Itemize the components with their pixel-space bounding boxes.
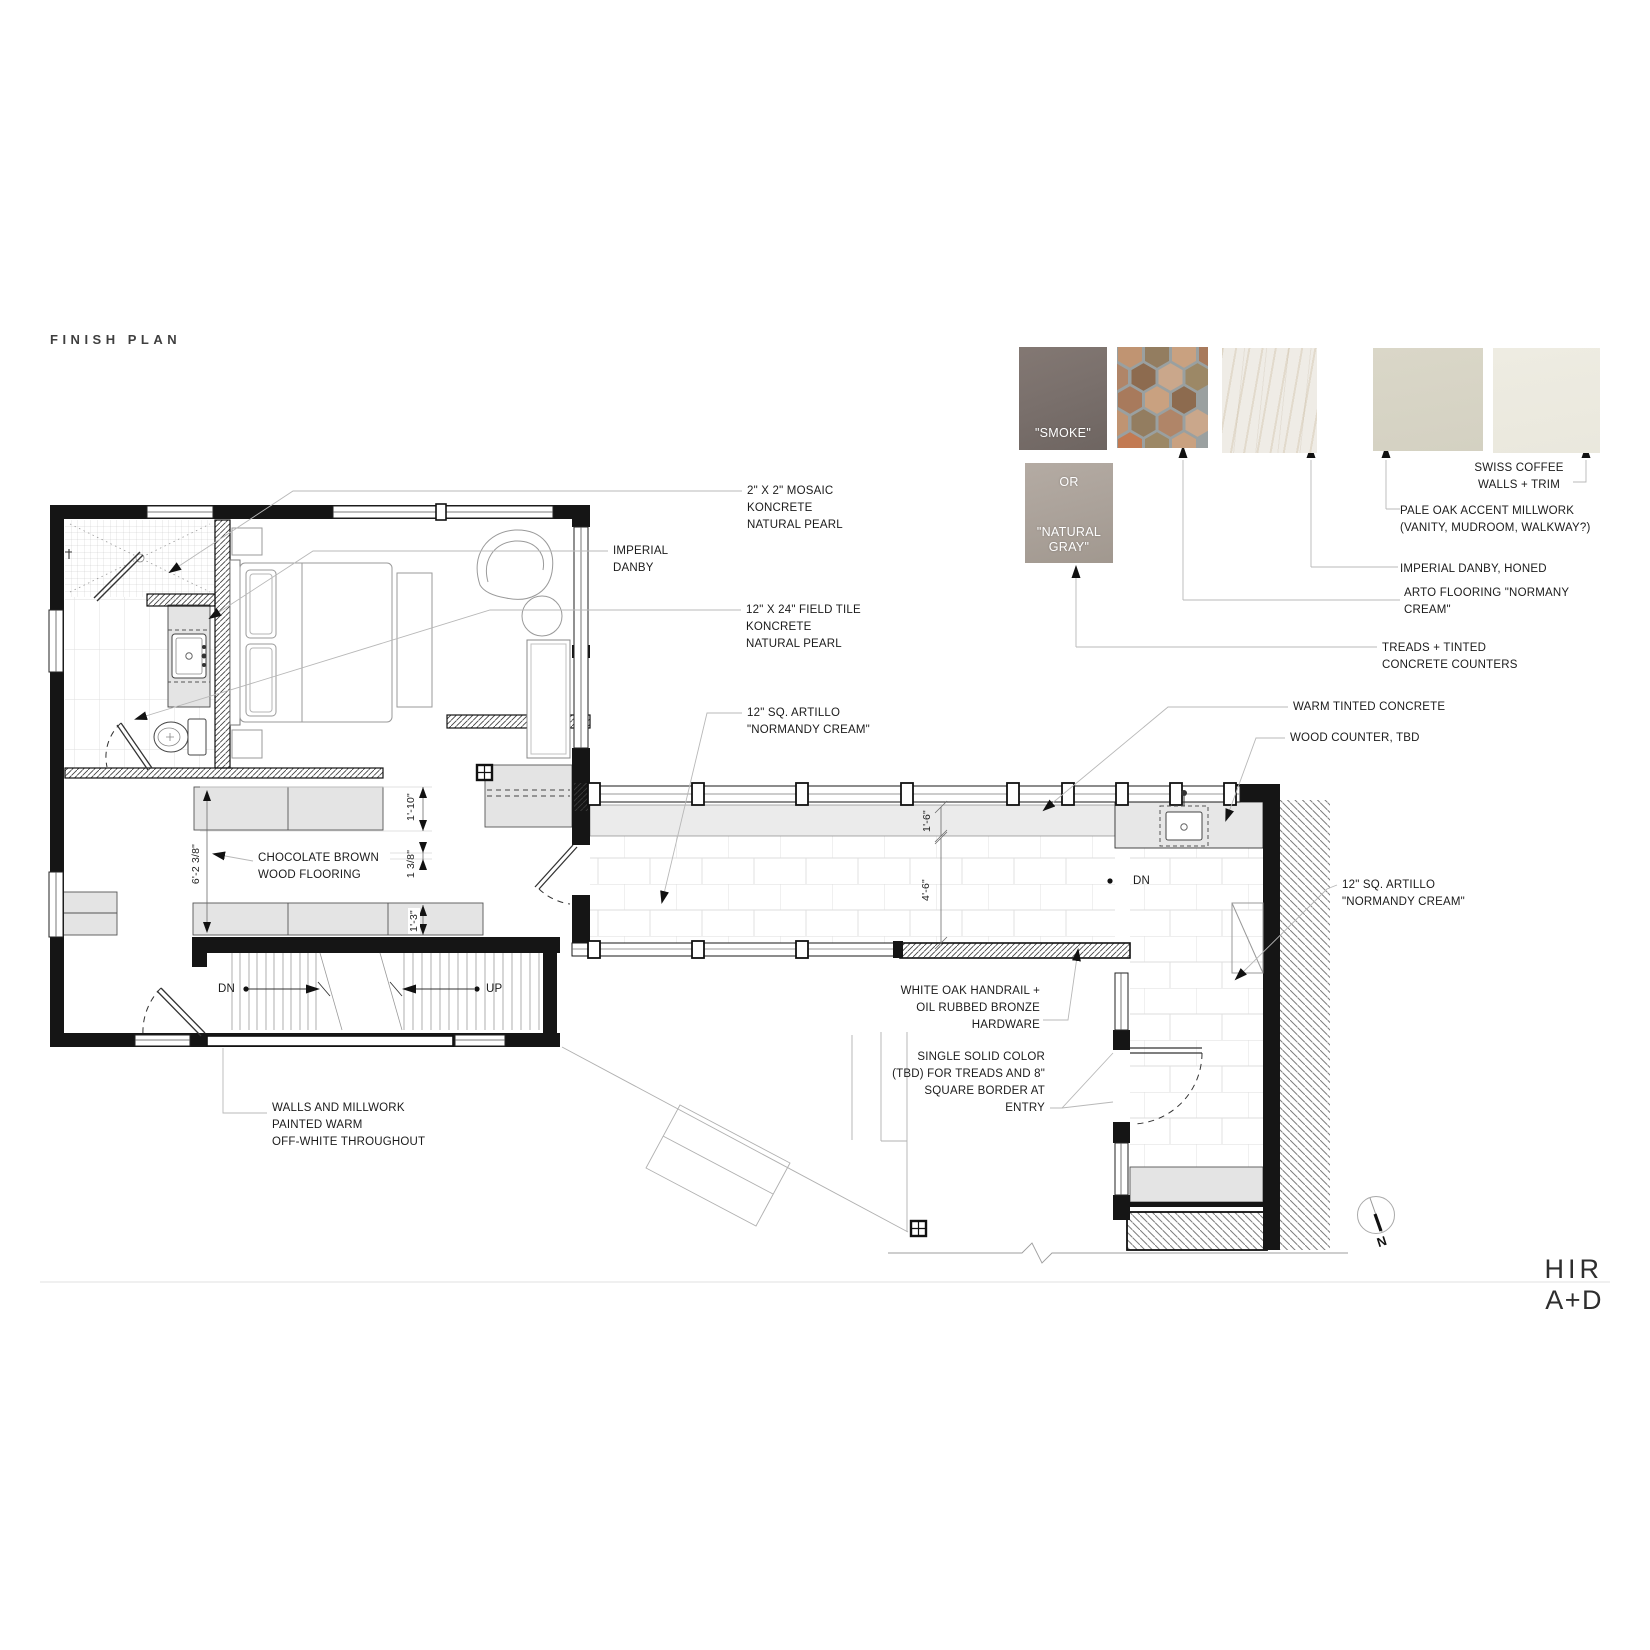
note-field-tile: 12" X 24" FIELD TILE KONCRETE NATURAL PE…	[746, 602, 861, 653]
legend-arto-flooring: ARTO FLOORING "NORMANY CREAM"	[1404, 585, 1569, 619]
nightstand-bottom	[232, 730, 262, 758]
stair-dn-label: DN	[218, 981, 235, 998]
legend-warm-concrete: WARM TINTED CONCRETE	[1293, 699, 1445, 716]
entry-dn-label: DN	[1133, 873, 1150, 890]
swatch-pale-oak	[1373, 348, 1483, 451]
swatch-imperial-danby-marble	[1222, 348, 1317, 453]
note-walls-millwork: WALLS AND MILLWORK PAINTED WARM OFF-WHIT…	[272, 1100, 425, 1151]
dim-trim: 1 3/8"	[405, 850, 417, 878]
note-mosaic-tile: 2" X 2" MOSAIC KONCRETE NATURAL PEARL	[747, 483, 843, 534]
swatch-natural-gray-label: "NATURAL GRAY"	[1025, 525, 1113, 555]
bed-bench	[397, 573, 432, 707]
stair-hall-entry-door	[143, 988, 205, 1036]
note-single-solid-color: SINGLE SOLID COLOR (TBD) FOR TREADS AND …	[815, 1049, 1045, 1117]
stair-up-label: UP	[486, 981, 502, 998]
swatch-swiss-coffee	[1493, 348, 1600, 453]
dim-band: 1'-6"	[921, 810, 933, 832]
dim-cabinet: 1'-3"	[408, 908, 420, 934]
dim-hall: 6'-2 3/8"	[190, 844, 202, 884]
legend-wood-counter: WOOD COUNTER, TBD	[1290, 730, 1420, 747]
cabinet-row-lower	[193, 903, 483, 935]
firm-logo: HIR A+D	[1545, 1254, 1604, 1316]
note-imperial-danby: IMPERIAL DANBY	[613, 543, 668, 577]
bedroom-walkway-door	[535, 845, 577, 904]
exterior-wall-hatch	[1280, 800, 1330, 1250]
cabinet-row-upper	[194, 787, 383, 830]
note-artillo-entry: 12" SQ. ARTILLO "NORMANDY CREAM"	[1342, 877, 1465, 911]
north-arrow-icon	[1358, 1197, 1395, 1234]
swatch-natural-gray-concrete: OR "NATURAL GRAY"	[1025, 463, 1113, 563]
walkway-concrete-band	[590, 805, 1115, 836]
finish-plan-sheet: FINISH PLAN "SMOKE" OR "NATURAL GRAY"	[0, 0, 1650, 1650]
arto-hex-mosaic-icon	[1117, 347, 1208, 448]
legend-pale-oak: PALE OAK ACCENT MILLWORK (VANITY, MUDROO…	[1400, 503, 1590, 537]
note-artillo-walkway: 12" SQ. ARTILLO "NORMANDY CREAM"	[747, 705, 870, 739]
swatch-smoke-label: "SMOKE"	[1019, 426, 1107, 440]
swatch-smoke-concrete: "SMOKE"	[1019, 347, 1107, 450]
floor-plan-drawing	[0, 0, 1650, 1650]
note-chocolate-wood: CHOCOLATE BROWN WOOD FLOORING	[258, 850, 379, 884]
logo-line2: A+D	[1545, 1285, 1604, 1316]
wall-pier-hatch	[574, 783, 588, 811]
vanity-sink-icon	[168, 630, 210, 682]
swatch-arto-hex-tile	[1117, 347, 1208, 448]
legend-treads-concrete: TREADS + TINTED CONCRETE COUNTERS	[1382, 640, 1518, 674]
nightstand-top	[232, 528, 262, 555]
legend-imperial-danby: IMPERIAL DANBY, HONED	[1400, 561, 1547, 578]
side-table	[522, 596, 562, 636]
mudroom-bench	[1130, 1167, 1263, 1202]
legend-swiss-coffee: SWISS COFFEE WALLS + TRIM	[1444, 460, 1594, 494]
bench-left	[58, 892, 117, 935]
toilet-icon	[154, 719, 206, 755]
dim-walkway: 4'-6"	[920, 879, 932, 901]
bed	[230, 560, 392, 725]
sheet-title: FINISH PLAN	[50, 332, 181, 347]
lounge-chair	[477, 530, 553, 599]
logo-line1: HIR	[1545, 1254, 1604, 1285]
dim-closet: 1'-10"	[405, 793, 417, 821]
note-white-oak-handrail: WHITE OAK HANDRAIL + OIL RUBBED BRONZE H…	[840, 983, 1040, 1034]
swatch-or-label: OR	[1025, 475, 1113, 489]
